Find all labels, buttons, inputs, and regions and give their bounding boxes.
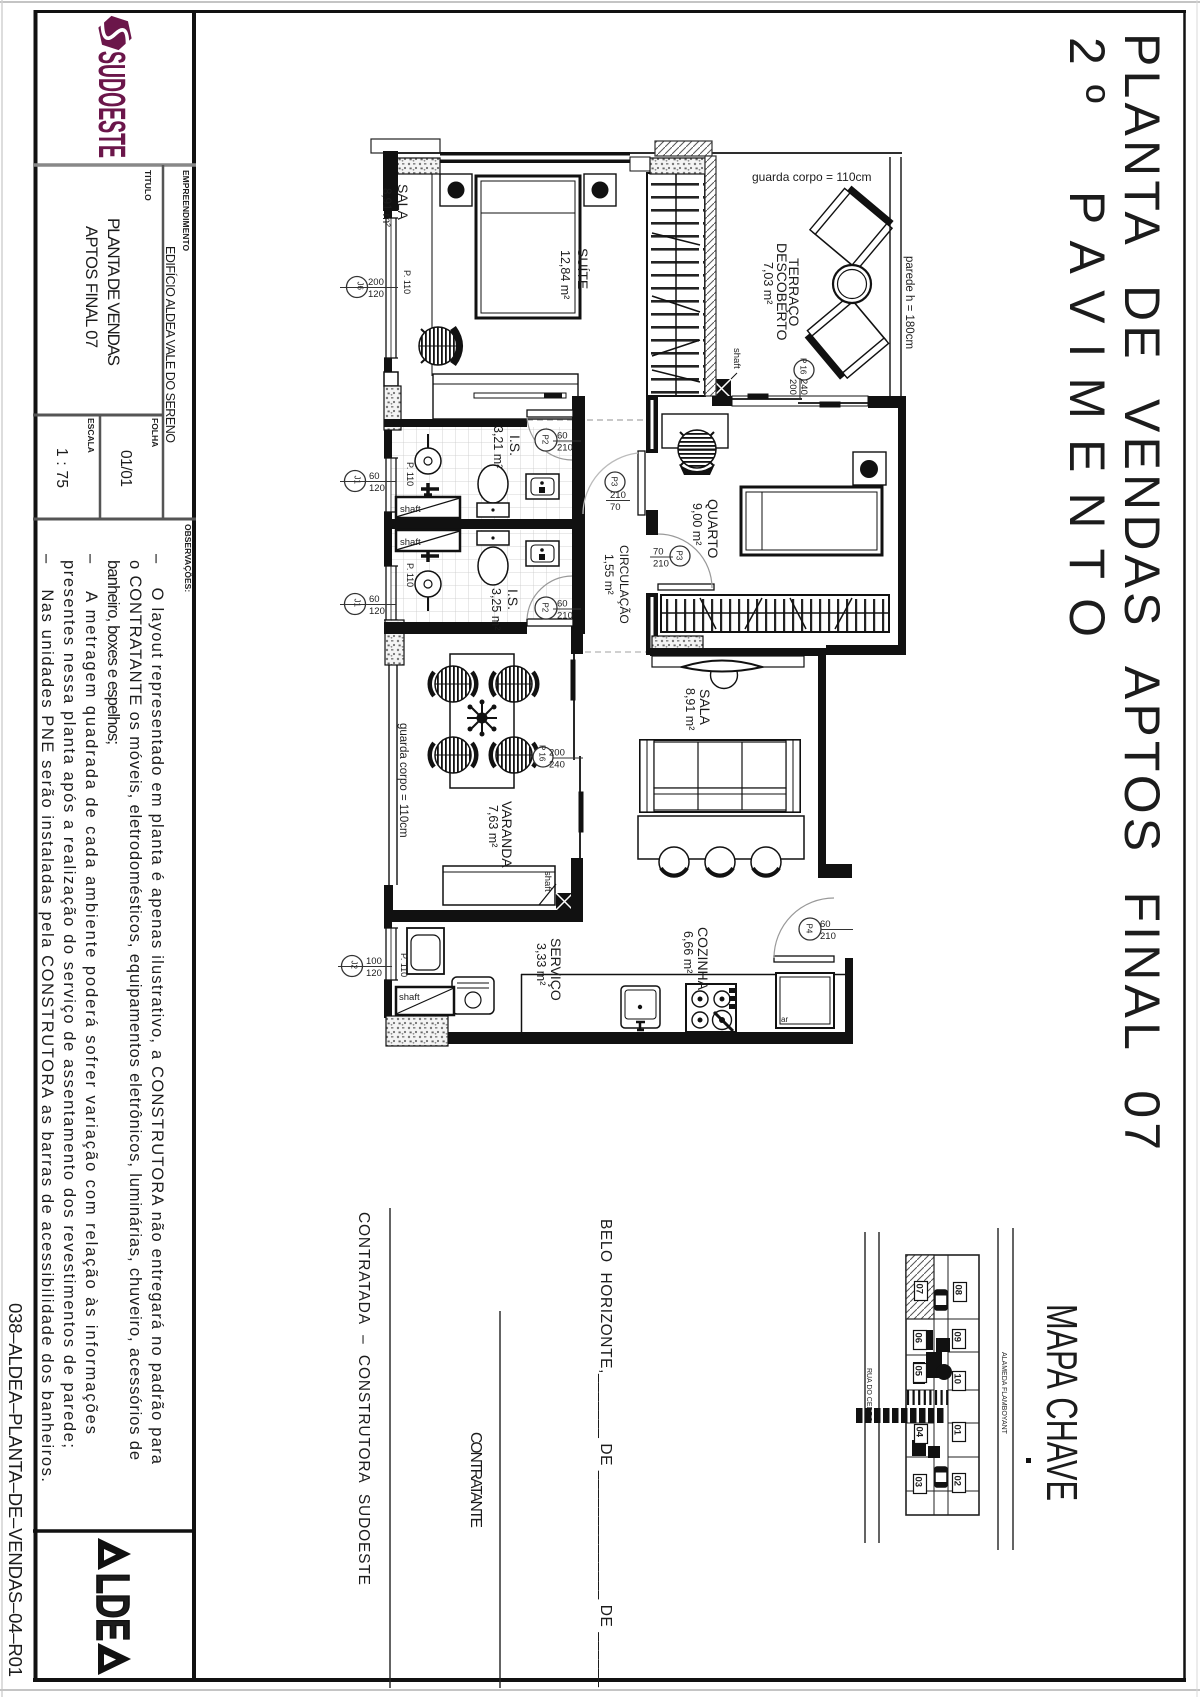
svg-text:3,25 m²: 3,25 m² <box>489 588 503 630</box>
svg-text:210: 210 <box>557 611 573 622</box>
svg-text:CONTRATADA – CONSTRUTORA SU: CONTRATADA – CONSTRUTORA SUDOESTE <box>355 1212 372 1585</box>
svg-text:120: 120 <box>369 483 385 494</box>
svg-text:038–ALDEA–PLANTA–DE–VENDAS–04–: 038–ALDEA–PLANTA–DE–VENDAS–04–R01 <box>5 1303 26 1677</box>
svg-text:08: 08 <box>953 1285 964 1296</box>
svg-text:210: 210 <box>653 559 669 570</box>
svg-text:CONTRATANTE: CONTRATANTE <box>467 1432 484 1528</box>
svg-text:1 : 75: 1 : 75 <box>53 448 70 488</box>
svg-text:I.S.: I.S. <box>507 435 523 456</box>
svg-text:SUDOESTE: SUDOESTE <box>90 51 132 158</box>
svg-text:P2: P2 <box>541 435 550 445</box>
svg-text:60: 60 <box>557 599 568 610</box>
svg-text:02: 02 <box>952 1476 963 1487</box>
svg-text:EDIFÍCIO ALDEA VALE DO SERENO: EDIFÍCIO ALDEA VALE DO SERENO <box>163 246 178 443</box>
svg-text:shaft: shaft <box>399 992 420 1003</box>
svg-text:60: 60 <box>369 594 380 605</box>
svg-text:shaft: shaft <box>542 871 553 892</box>
svg-text:01/01: 01/01 <box>117 450 134 487</box>
svg-text:– Nas unidades PNE serão in: – Nas unidades PNE serão instaladas pela… <box>38 554 56 1482</box>
svg-text:100: 100 <box>366 956 382 967</box>
svg-text:P3: P3 <box>610 477 619 487</box>
svg-text:SUÍTE: SUÍTE <box>575 248 591 289</box>
svg-text:PLANTA DE VENDAS: PLANTA DE VENDAS <box>104 218 123 366</box>
svg-text:09: 09 <box>952 1332 963 1343</box>
svg-text:P. 110: P. 110 <box>405 462 415 486</box>
svg-text:o CONTRATANTE os móveis, eletr: o CONTRATANTE os móveis, eletrodoméstico… <box>126 560 144 1460</box>
svg-text:120: 120 <box>369 606 385 617</box>
svg-text:J2: J2 <box>350 961 359 970</box>
svg-text:200: 200 <box>368 277 384 288</box>
svg-text:9,00 m²: 9,00 m² <box>690 503 704 545</box>
svg-text:8,91 m²: 8,91 m² <box>380 188 392 227</box>
svg-text:P. 110: P. 110 <box>402 270 412 294</box>
svg-text:ALAMEDA FLAMBOYANT: ALAMEDA FLAMBOYANT <box>1000 1352 1007 1435</box>
svg-text:01: 01 <box>952 1425 963 1436</box>
svg-text:P 16: P 16 <box>799 358 808 375</box>
svg-text:P4: P4 <box>805 924 814 934</box>
svg-text:10: 10 <box>952 1374 963 1385</box>
svg-text:3,33 m²: 3,33 m² <box>534 943 548 985</box>
svg-text:210: 210 <box>557 443 573 454</box>
svg-text:I.S.: I.S. <box>505 589 521 610</box>
svg-text:6,66 m²: 6,66 m² <box>681 931 695 973</box>
svg-text:shaft: shaft <box>731 348 742 369</box>
svg-text:COZINHA: COZINHA <box>695 927 711 991</box>
svg-text:210: 210 <box>610 490 626 501</box>
svg-text:120: 120 <box>368 289 384 300</box>
svg-text:04: 04 <box>914 1427 925 1438</box>
svg-text:banheiro, boxes e espelhos;: banheiro, boxes e espelhos; <box>104 560 122 745</box>
svg-text:240: 240 <box>549 760 565 771</box>
svg-text:DESCOBERTO: DESCOBERTO <box>774 243 790 341</box>
svg-text:J1: J1 <box>353 599 362 608</box>
svg-text:SALA: SALA <box>395 184 411 220</box>
svg-text:guarda corpo = 110cm: guarda corpo = 110cm <box>397 723 409 838</box>
svg-text:– A metragem quadrada de ca: – A metragem quadrada de cada ambiente p… <box>82 554 100 1434</box>
svg-text:CIRCULAÇÃO: CIRCULAÇÃO <box>617 545 631 624</box>
svg-text:06: 06 <box>913 1333 924 1344</box>
svg-text:200: 200 <box>787 379 798 395</box>
svg-text:– O layout representado em: – O layout representado em planta é apen… <box>148 554 166 1465</box>
svg-text:SALA: SALA <box>697 689 713 725</box>
svg-text:ESCALA: ESCALA <box>86 418 96 453</box>
svg-text:70: 70 <box>610 502 621 513</box>
svg-text:8,91 m²: 8,91 m² <box>683 688 697 730</box>
svg-text:05: 05 <box>913 1366 924 1377</box>
svg-text:LDE: LDE <box>87 1573 139 1641</box>
svg-text:presentes nessa planta após a: presentes nessa planta após a realização… <box>60 560 78 1448</box>
svg-text:shaft: shaft <box>400 537 421 548</box>
svg-text:60: 60 <box>369 471 380 482</box>
svg-text:3,21 m²: 3,21 m² <box>491 426 505 468</box>
svg-text:ar: ar <box>781 1015 788 1024</box>
svg-text:APTOS FINAL 07: APTOS FINAL 07 <box>82 226 100 348</box>
svg-text:12,84 m²: 12,84 m² <box>558 250 572 299</box>
svg-text:guarda corpo = 110cm: guarda corpo = 110cm <box>752 170 872 184</box>
svg-text:60: 60 <box>557 431 568 442</box>
svg-text:BELO HORIZONTE,_______ DE ___: BELO HORIZONTE,_______ DE ______________… <box>597 1219 614 1687</box>
svg-text:P3: P3 <box>675 551 684 561</box>
svg-text:VARANDA: VARANDA <box>499 801 515 868</box>
svg-text:200: 200 <box>549 748 565 759</box>
svg-text:SERVIÇO: SERVIÇO <box>548 938 564 1001</box>
svg-text:OBSERVAÇÕES:: OBSERVAÇÕES: <box>183 524 193 592</box>
svg-text:1,55 m²: 1,55 m² <box>602 554 616 595</box>
svg-text:P. 110: P. 110 <box>405 563 415 587</box>
svg-text:07: 07 <box>914 1284 925 1295</box>
svg-text:240: 240 <box>798 379 809 395</box>
svg-text:7,63 m²: 7,63 m² <box>486 805 500 847</box>
svg-text:210: 210 <box>820 931 836 942</box>
svg-text:03: 03 <box>913 1477 924 1488</box>
svg-text:J6: J6 <box>356 282 365 291</box>
svg-text:TITULO: TITULO <box>143 170 153 201</box>
svg-text:P. 110: P. 110 <box>399 953 409 977</box>
svg-text:P2: P2 <box>541 603 550 613</box>
svg-text:shaft: shaft <box>400 504 421 515</box>
svg-text:parede h = 180cm: parede h = 180cm <box>903 256 915 349</box>
svg-text:P 16: P 16 <box>538 745 547 762</box>
svg-text:QUARTO: QUARTO <box>705 499 721 558</box>
svg-text:60: 60 <box>820 919 831 930</box>
svg-text:J1: J1 <box>353 476 362 485</box>
svg-text:MAPA CHAVE: MAPA CHAVE <box>1037 1304 1086 1501</box>
svg-text:70: 70 <box>653 547 664 558</box>
svg-text:120: 120 <box>366 968 382 979</box>
svg-text:EMPREENDIMENTO: EMPREENDIMENTO <box>181 170 191 251</box>
svg-text:7,03 m²: 7,03 m² <box>761 262 775 304</box>
svg-text:FOLHA: FOLHA <box>150 418 160 447</box>
